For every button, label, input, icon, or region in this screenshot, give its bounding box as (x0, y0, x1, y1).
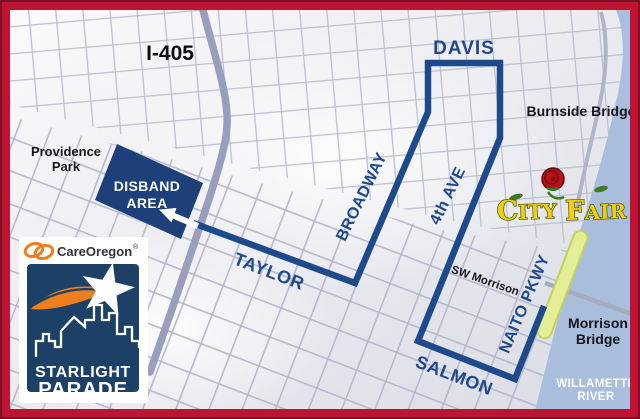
parade-route-map: DISBAND AREA I-405 DAVIS Burnside Bridge… (0, 0, 640, 419)
morrison-bridge-label-line2: Bridge (576, 331, 621, 347)
i405-label: I-405 (146, 42, 194, 65)
disband-label-line1: DISBAND (114, 178, 181, 194)
map-canvas: DISBAND AREA I-405 DAVIS Burnside Bridge… (0, 0, 640, 419)
morrison-bridge-label-line1: Morrison (568, 315, 628, 331)
willamette-river-label-line1: WILLAMETTE (556, 378, 635, 390)
providence-park-label-line1: Providence (31, 144, 101, 159)
careoregon-trademark: ® (133, 243, 139, 251)
disband-label-line2: AREA (126, 195, 167, 211)
providence-park-label-line2: Park (52, 159, 81, 174)
careoregon-brand-text: CareOregon (57, 244, 132, 259)
davis-label: DAVIS (433, 38, 495, 59)
starlight-parade-logo: CareOregon ® STARLIGHT PARADE (19, 237, 148, 403)
willamette-river-label-line2: RIVER (577, 391, 614, 403)
rose-icon (542, 168, 564, 191)
parade-text: PARADE (38, 378, 128, 401)
burnside-bridge-label: Burnside Bridge (527, 103, 636, 119)
